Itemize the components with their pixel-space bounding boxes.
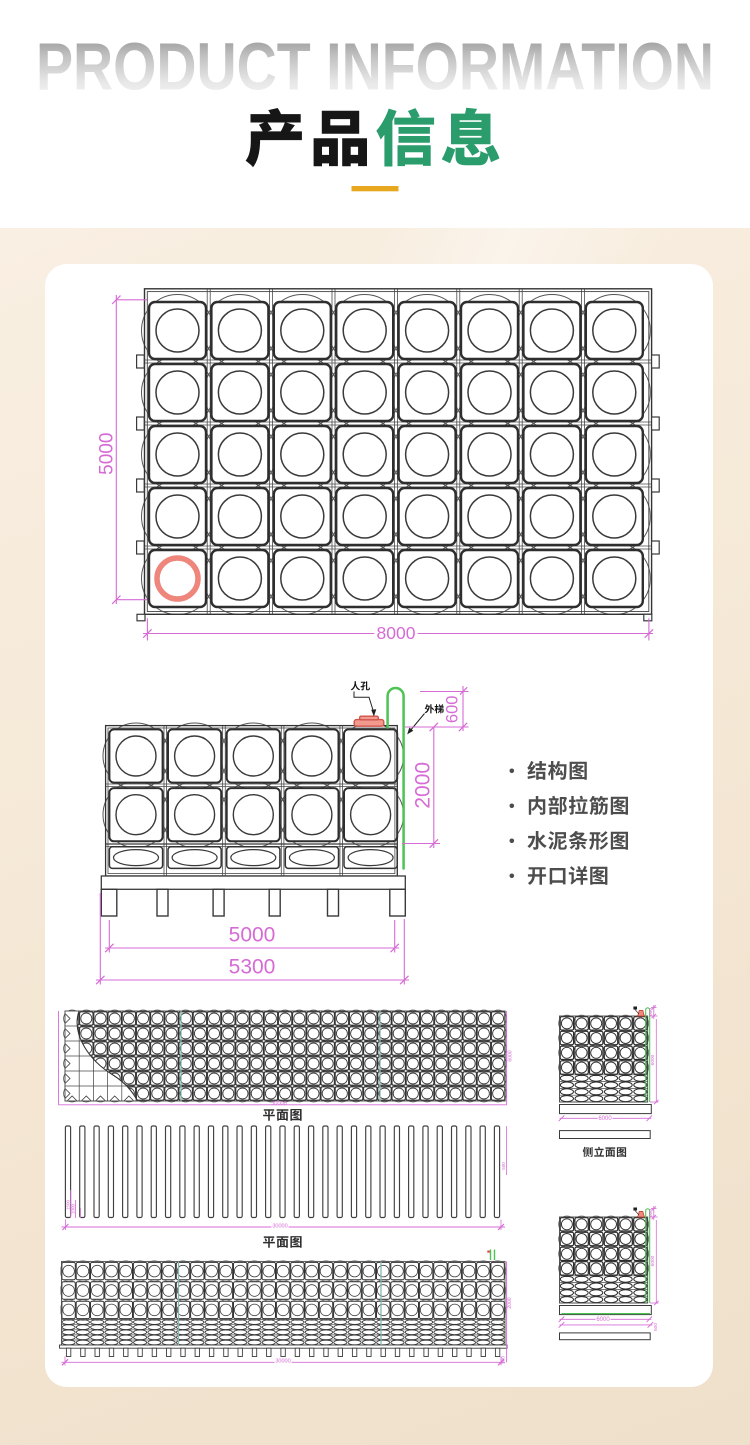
svg-text:5300: 5300 <box>229 956 276 979</box>
svg-text:500: 500 <box>501 1162 506 1170</box>
svg-text:30000: 30000 <box>275 1359 290 1365</box>
svg-text:2000: 2000 <box>507 1297 513 1308</box>
svg-text:6000: 6000 <box>650 1255 656 1266</box>
svg-text:8000: 8000 <box>377 623 416 643</box>
svg-text:1000: 1000 <box>71 1203 76 1214</box>
svg-text:6000: 6000 <box>598 1116 612 1122</box>
svg-text:6000: 6000 <box>508 1050 514 1061</box>
svg-text:600: 600 <box>444 696 462 724</box>
svg-text:2000: 2000 <box>412 762 435 809</box>
svg-text:30000: 30000 <box>271 1101 286 1107</box>
svg-text:6000: 6000 <box>596 1317 610 1323</box>
svg-text:5000: 5000 <box>229 924 276 947</box>
svg-text:600: 600 <box>648 1008 654 1016</box>
svg-text:500: 500 <box>653 1323 659 1331</box>
svg-text:500: 500 <box>501 1356 506 1364</box>
svg-text:PRODUCT INFORMATION: PRODUCT INFORMATION <box>36 30 714 105</box>
svg-text:600: 600 <box>648 1209 654 1217</box>
svg-text:6000: 6000 <box>650 1054 656 1065</box>
svg-text:30000: 30000 <box>272 1223 287 1229</box>
svg-text:5000: 5000 <box>96 433 117 475</box>
